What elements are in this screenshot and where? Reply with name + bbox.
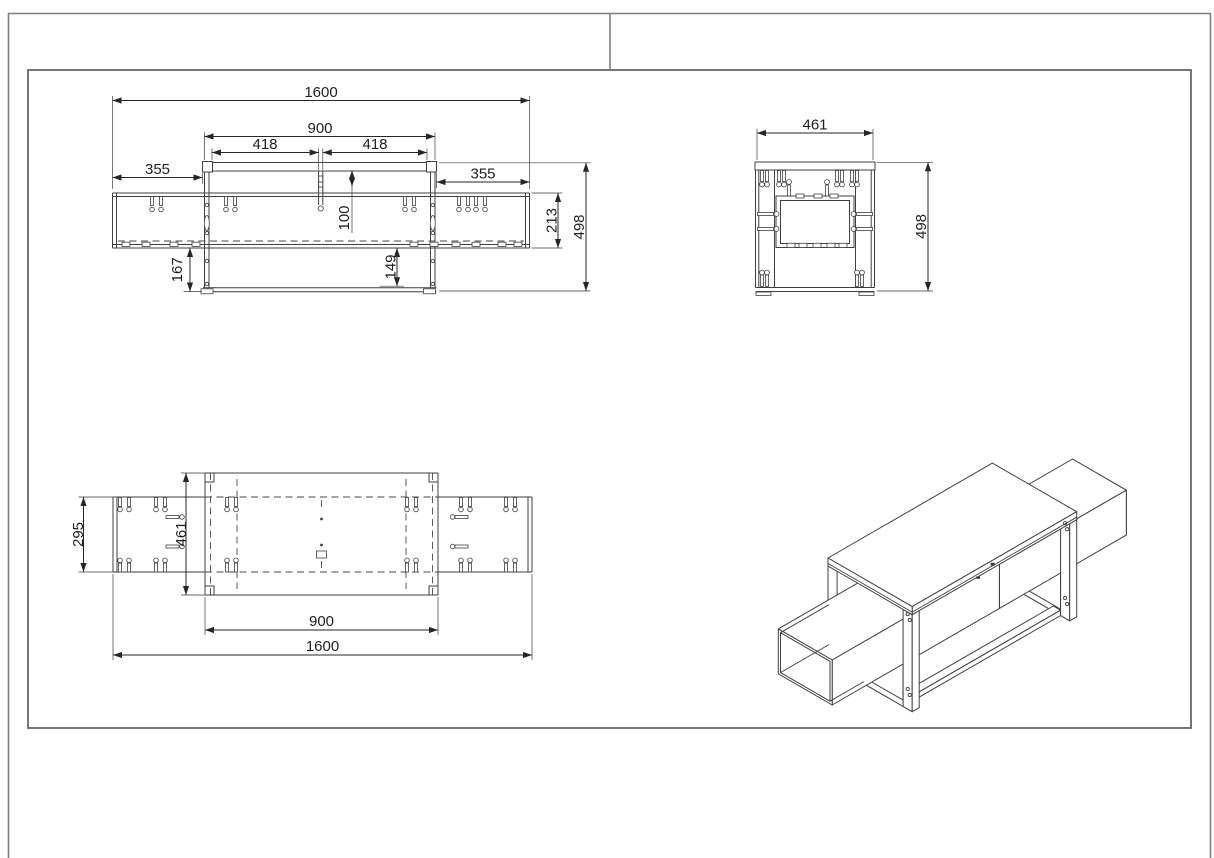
bolt-head-icon <box>225 558 230 563</box>
bolt-icon <box>851 171 854 182</box>
bolt-head-icon <box>765 182 770 187</box>
plan-center-mark <box>320 518 323 521</box>
connector-icon <box>170 242 178 246</box>
connector-icon <box>827 243 835 247</box>
bolt-head-icon <box>504 558 509 563</box>
bolt-icon <box>415 563 418 572</box>
bolt-head-icon <box>851 212 856 217</box>
bolt-icon <box>778 171 781 182</box>
bolt-head-icon <box>318 206 323 211</box>
dim-text-1600: 1600 <box>304 84 337 101</box>
bolt-head-icon <box>860 270 865 275</box>
bolt-icon <box>766 275 769 287</box>
iso-left-near-bar <box>912 611 919 712</box>
plan-view: 295 461 900 1600 <box>70 473 532 660</box>
bolt-head-icon <box>459 507 464 512</box>
connector-icon <box>410 242 418 246</box>
plan-center-mark <box>320 544 323 547</box>
bolt-icon <box>826 185 829 196</box>
bolt-icon <box>766 171 769 182</box>
bolt-head-icon <box>835 182 840 187</box>
bolt-icon <box>164 563 167 572</box>
bolt-head-icon <box>855 182 860 187</box>
front-right-foot <box>424 289 436 294</box>
bolt-head-icon <box>468 558 473 563</box>
connector-icon <box>796 194 804 198</box>
bolt-head-icon <box>468 507 473 512</box>
bolt-icon <box>160 197 163 206</box>
connector-icon <box>514 242 522 246</box>
connector-icon <box>787 243 795 247</box>
front-bottom-shelf <box>203 288 437 292</box>
side-left-foot <box>756 292 771 296</box>
hole-icon <box>205 203 208 206</box>
bolt-icon <box>505 498 508 507</box>
bolt-head-icon <box>405 507 410 512</box>
cam-lock-icon <box>430 216 435 231</box>
bolt-head-icon <box>825 180 830 185</box>
bolt-icon <box>857 213 873 216</box>
dim-text-900: 900 <box>307 120 332 137</box>
bolt-head-icon <box>513 558 518 563</box>
bolt-icon <box>758 213 774 216</box>
hole-icon <box>431 259 434 262</box>
divider-slot-icon <box>319 187 323 193</box>
bolt-head-icon <box>450 515 455 520</box>
dim-text-213: 213 <box>543 208 560 233</box>
bolt-icon <box>225 197 228 206</box>
side-tabletop <box>755 162 875 170</box>
outer-border <box>9 14 1211 858</box>
bolt-head-icon <box>154 507 159 512</box>
bolt-head-icon <box>118 558 123 563</box>
hole-icon <box>431 231 434 234</box>
front-right-cap <box>427 162 437 173</box>
bolt-icon <box>119 563 122 572</box>
bolt-head-icon <box>474 207 479 212</box>
bolt-icon <box>119 498 122 507</box>
bolt-head-icon <box>224 207 229 212</box>
bolt-icon <box>841 171 844 182</box>
bolt-icon <box>155 498 158 507</box>
front-view: 1600 900 418 418 355 355 100 213 498 167… <box>113 84 591 294</box>
bolt-icon <box>761 275 764 287</box>
bolt-icon <box>235 563 238 572</box>
divider-slot-icon <box>319 176 323 182</box>
dim-text-498-front: 498 <box>571 214 588 239</box>
bolt-icon <box>404 197 407 206</box>
bolt-icon <box>467 197 470 206</box>
dim-text-355-left: 355 <box>145 161 170 178</box>
bolt-icon <box>406 563 409 572</box>
bolt-icon <box>128 498 131 507</box>
bolt-head-icon <box>777 182 782 187</box>
bolt-icon <box>783 171 786 182</box>
bolt-icon <box>761 171 764 182</box>
hole-icon <box>205 259 208 262</box>
bolt-head-icon <box>483 207 488 212</box>
bolt-icon <box>836 171 839 182</box>
bolt-head-icon <box>504 507 509 512</box>
dim-text-461-plan: 461 <box>173 521 190 546</box>
dim-text-461-side: 461 <box>802 117 827 134</box>
hole-icon <box>205 282 208 285</box>
bolt-head-icon <box>765 270 770 275</box>
bolt-icon <box>856 275 859 287</box>
bolt-icon <box>857 228 873 231</box>
bolt-icon <box>788 185 791 196</box>
hole-icon <box>431 203 434 206</box>
connector-icon <box>472 242 480 246</box>
bolt-head-icon <box>405 558 410 563</box>
bolt-head-icon <box>450 544 455 549</box>
dim-text-149: 149 <box>382 254 399 279</box>
plan-tabletop <box>205 473 438 595</box>
bolt-head-icon <box>233 207 238 212</box>
bolt-head-icon <box>840 182 845 187</box>
bolt-head-icon <box>760 270 765 275</box>
bolt-head-icon <box>466 207 471 212</box>
bolt-icon <box>469 563 472 572</box>
bolt-head-icon <box>414 507 419 512</box>
technical-drawing: 1600 900 418 418 355 355 100 213 498 167… <box>0 0 1214 858</box>
bolt-icon <box>226 498 229 507</box>
bolt-head-icon <box>180 515 185 520</box>
bolt-head-icon <box>159 207 164 212</box>
dim-text-100: 100 <box>336 205 353 230</box>
dim-text-1600-plan: 1600 <box>306 638 339 655</box>
connector-icon <box>813 243 821 247</box>
bolt-head-icon <box>760 182 765 187</box>
bolt-icon <box>505 563 508 572</box>
side-box-section <box>776 196 854 248</box>
bolt-head-icon <box>787 180 792 185</box>
hole-icon <box>205 231 208 234</box>
bolt-head-icon <box>234 558 239 563</box>
bolt-head-icon <box>412 207 417 212</box>
connector-icon <box>799 243 807 247</box>
bolt-head-icon <box>414 558 419 563</box>
lock-fitting-icon <box>991 563 995 566</box>
cam-lock-icon <box>204 216 209 231</box>
bolt-head-icon <box>513 507 518 512</box>
bolt-head-icon <box>150 207 155 212</box>
bolt-icon <box>151 197 154 206</box>
hole-icon <box>431 282 434 285</box>
bolt-head-icon <box>850 182 855 187</box>
bolt-icon <box>469 498 472 507</box>
dim-text-418-right: 418 <box>362 136 387 153</box>
front-left-cap <box>203 162 213 173</box>
bolt-head-icon <box>851 227 856 232</box>
bolt-icon <box>226 563 229 572</box>
isometric-view <box>778 459 1126 712</box>
bolt-head-icon <box>163 558 168 563</box>
bolt-head-icon <box>118 507 123 512</box>
dim-text-900-plan: 900 <box>309 613 334 630</box>
bolt-icon <box>861 275 864 287</box>
dim-text-295: 295 <box>70 522 87 547</box>
front-left-foot <box>201 289 213 294</box>
bolt-icon <box>166 516 179 519</box>
bolt-icon <box>455 516 468 519</box>
bolt-head-icon <box>163 507 168 512</box>
iso-right-near-bar <box>1070 520 1077 621</box>
bolt-head-icon <box>225 507 230 512</box>
bolt-head-icon <box>234 507 239 512</box>
bolt-icon <box>155 563 158 572</box>
bolt-icon <box>758 228 774 231</box>
bolt-icon <box>460 498 463 507</box>
side-view: 461 498 <box>755 117 933 296</box>
lock-fitting-icon <box>976 576 980 579</box>
bolt-icon <box>484 197 487 206</box>
bolt-head-icon <box>774 212 779 217</box>
bolt-head-icon <box>782 182 787 187</box>
dim-text-167: 167 <box>169 257 186 282</box>
dim-text-355-right: 355 <box>470 166 495 183</box>
bolt-head-icon <box>127 507 132 512</box>
connector-icon <box>122 242 130 246</box>
bolt-icon <box>475 197 478 206</box>
bolt-head-icon <box>154 558 159 563</box>
bolt-icon <box>458 197 461 206</box>
bolt-icon <box>514 563 517 572</box>
bolt-head-icon <box>855 270 860 275</box>
bolt-icon <box>406 498 409 507</box>
bolt-icon <box>234 197 237 206</box>
bolt-icon <box>514 498 517 507</box>
drawing-sheet: 1600 900 418 418 355 355 100 213 498 167… <box>0 0 1214 858</box>
plan-center-fitting <box>317 551 327 558</box>
bolt-icon <box>460 563 463 572</box>
bolt-head-icon <box>459 558 464 563</box>
connector-icon <box>452 242 460 246</box>
front-tabletop <box>212 163 427 172</box>
bolt-icon <box>164 498 167 507</box>
connector-icon <box>192 242 200 246</box>
bolt-icon <box>415 498 418 507</box>
bolt-head-icon <box>127 558 132 563</box>
connector-icon <box>142 242 150 246</box>
connector-icon <box>839 243 847 247</box>
connector-icon <box>830 194 838 198</box>
bolt-icon <box>455 545 468 548</box>
bolt-head-icon <box>403 207 408 212</box>
bolt-icon <box>128 563 131 572</box>
bolt-head-icon <box>774 227 779 232</box>
dim-text-498-side: 498 <box>913 214 930 239</box>
page-frame <box>9 14 1211 858</box>
bolt-icon <box>235 498 238 507</box>
bolt-head-icon <box>457 207 462 212</box>
connector-icon <box>814 194 822 198</box>
bolt-icon <box>413 197 416 206</box>
side-right-foot <box>859 292 874 296</box>
connector-icon <box>498 242 506 246</box>
bolt-icon <box>856 171 859 182</box>
dim-text-418-left: 418 <box>252 136 277 153</box>
connector-icon <box>430 242 438 246</box>
